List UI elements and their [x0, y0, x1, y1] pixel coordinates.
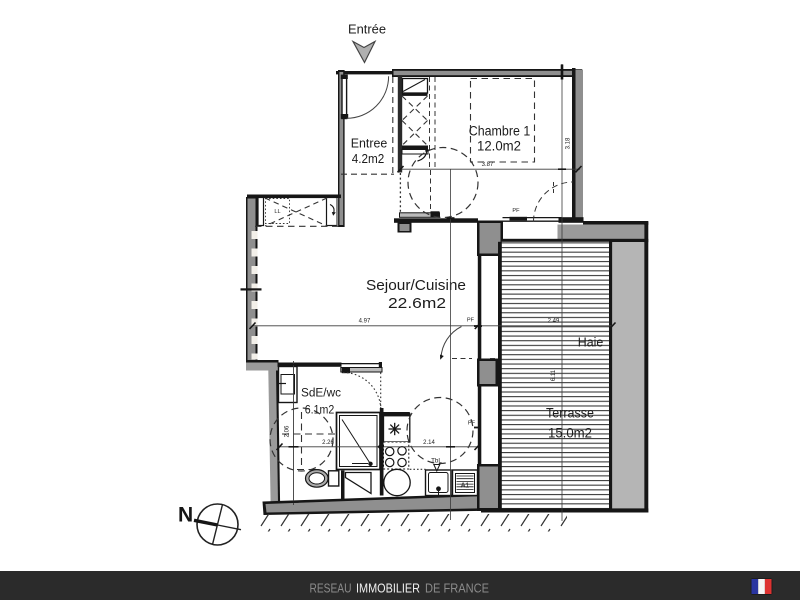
- svg-text:2.26: 2.26: [322, 440, 334, 446]
- svg-text:A1: A1: [461, 483, 470, 490]
- svg-text:2.14: 2.14: [423, 440, 435, 446]
- svg-text:SdE/wc: SdE/wc: [301, 386, 341, 400]
- svg-text:DE FRANCE: DE FRANCE: [425, 581, 489, 596]
- svg-text:Entrée: Entrée: [348, 22, 386, 37]
- svg-text:12.0m2: 12.0m2: [477, 139, 521, 154]
- svg-text:N: N: [178, 504, 193, 527]
- svg-text:22.6m2: 22.6m2: [388, 296, 446, 312]
- svg-text:4.2m2: 4.2m2: [352, 151, 385, 166]
- svg-text:Entree: Entree: [351, 136, 388, 151]
- svg-text:6.11: 6.11: [551, 369, 557, 381]
- svg-text:15.0m2: 15.0m2: [548, 426, 592, 441]
- svg-text:3.18: 3.18: [566, 137, 572, 149]
- svg-text:Terrasse: Terrasse: [546, 406, 594, 421]
- svg-text:PF: PF: [467, 318, 475, 324]
- svg-text:2.06: 2.06: [284, 425, 290, 437]
- svg-text:RESEAU: RESEAU: [310, 581, 352, 596]
- svg-text:LL: LL: [274, 209, 280, 215]
- svg-text:TbL: TbL: [431, 458, 442, 465]
- svg-text:Haie: Haie: [578, 335, 604, 350]
- svg-text:4.97: 4.97: [359, 319, 371, 325]
- svg-text:2.49: 2.49: [548, 319, 560, 325]
- svg-text:3.87: 3.87: [482, 162, 494, 168]
- svg-text:PF: PF: [512, 208, 520, 214]
- svg-text:Chambre 1: Chambre 1: [469, 124, 531, 139]
- svg-text:IMMOBILIER: IMMOBILIER: [356, 581, 420, 596]
